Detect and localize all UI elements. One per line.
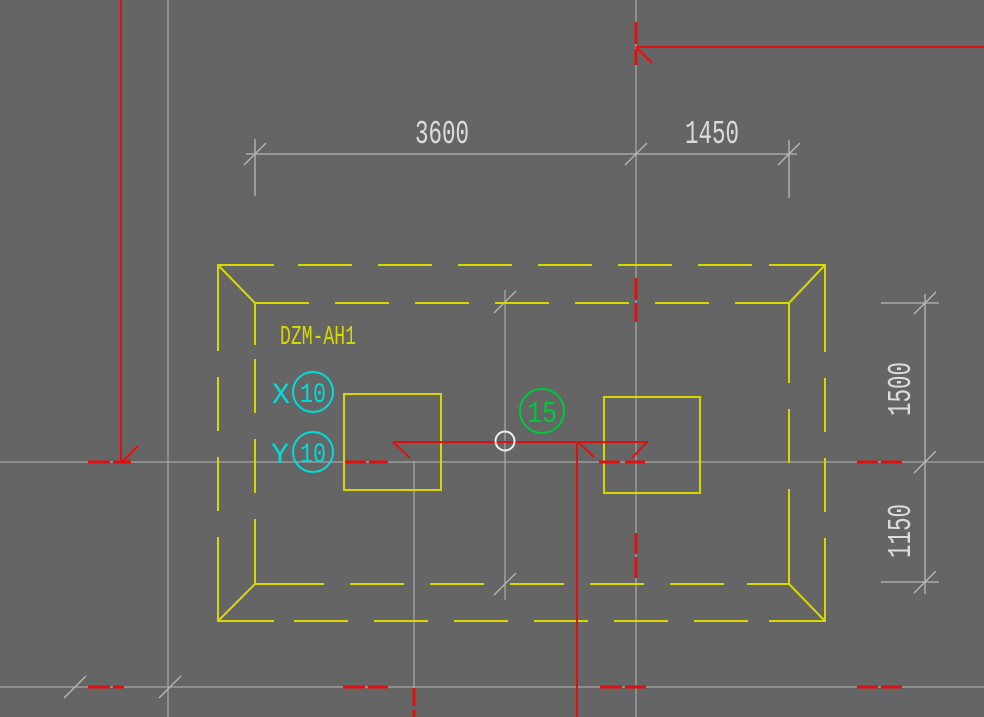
cad-drawing: 3600 1450 1500 1150 — [0, 0, 984, 717]
corner-diagonal-tr — [789, 265, 825, 303]
axis-y-number: 10 — [300, 440, 326, 471]
dim-value-1150: 1150 — [883, 504, 920, 558]
corner-diagonal-tl — [218, 265, 255, 303]
inner-corner-bl — [255, 542, 297, 584]
grid-lines — [0, 0, 984, 717]
section-cut-tick-3 — [632, 442, 647, 458]
detail-number: 15 — [527, 397, 557, 432]
inner-corner-tr — [747, 303, 789, 345]
dim-value-1500: 1500 — [883, 362, 920, 416]
dim-value-1450: 1450 — [685, 116, 739, 153]
corner-diagonal-br — [789, 584, 825, 621]
section-lines — [121, 0, 984, 717]
section-cut-tick-2 — [578, 442, 594, 457]
axis-x-letter: X — [272, 379, 290, 413]
corner-diagonal-bl — [218, 584, 255, 621]
dim-value-3600: 3600 — [415, 116, 469, 153]
axis-x-number: 10 — [300, 380, 326, 411]
dimension-right: 1500 1150 — [881, 292, 939, 594]
inner-corner-br — [747, 542, 789, 584]
section-cut-tick-1 — [393, 442, 410, 458]
column-right — [604, 397, 700, 493]
centerline-dashes — [88, 278, 902, 717]
cad-canvas[interactable]: 3600 1450 1500 1150 — [0, 0, 984, 717]
axis-y-letter: Y — [271, 439, 289, 473]
section-arrow-top — [636, 47, 652, 63]
dimension-top: 3600 1450 — [244, 116, 800, 198]
foundation-label: DZM-AH1 — [280, 323, 356, 353]
section-arrow-left — [121, 446, 138, 463]
